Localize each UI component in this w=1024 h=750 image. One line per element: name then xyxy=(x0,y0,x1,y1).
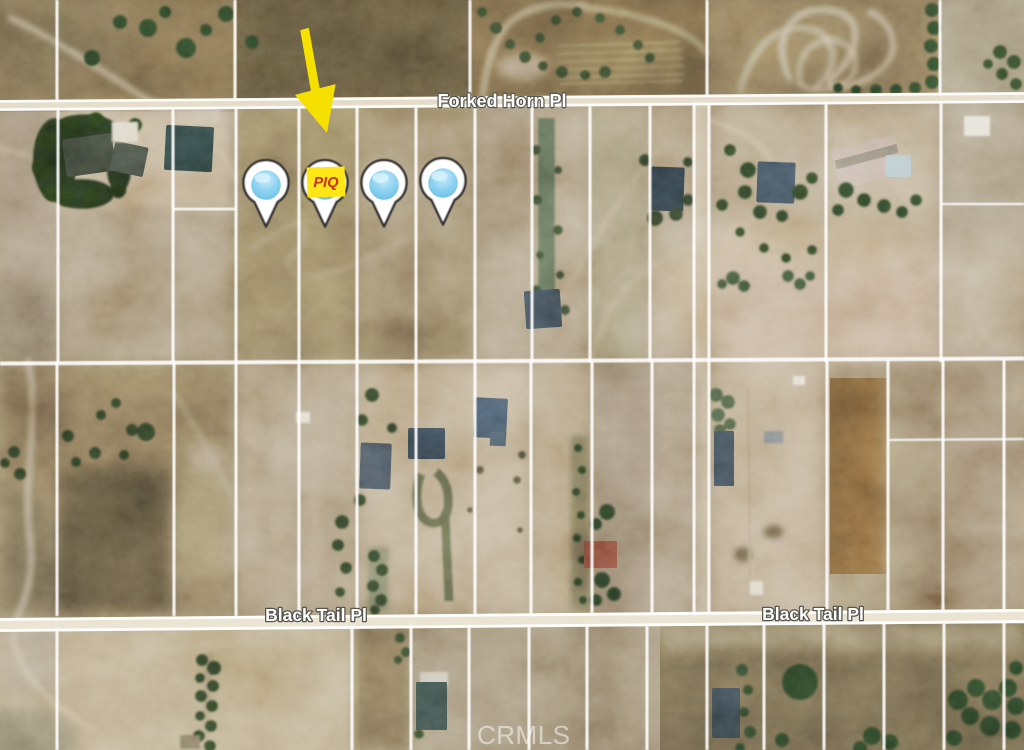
svg-text:CRMLS: CRMLS xyxy=(477,720,571,750)
svg-text:Black Tail Pl: Black Tail Pl xyxy=(265,605,367,625)
svg-text:Black Tail Pl: Black Tail Pl xyxy=(762,604,864,624)
svg-text:PIQ: PIQ xyxy=(314,175,340,191)
svg-text:Forked Horn Pl: Forked Horn Pl xyxy=(437,91,566,111)
